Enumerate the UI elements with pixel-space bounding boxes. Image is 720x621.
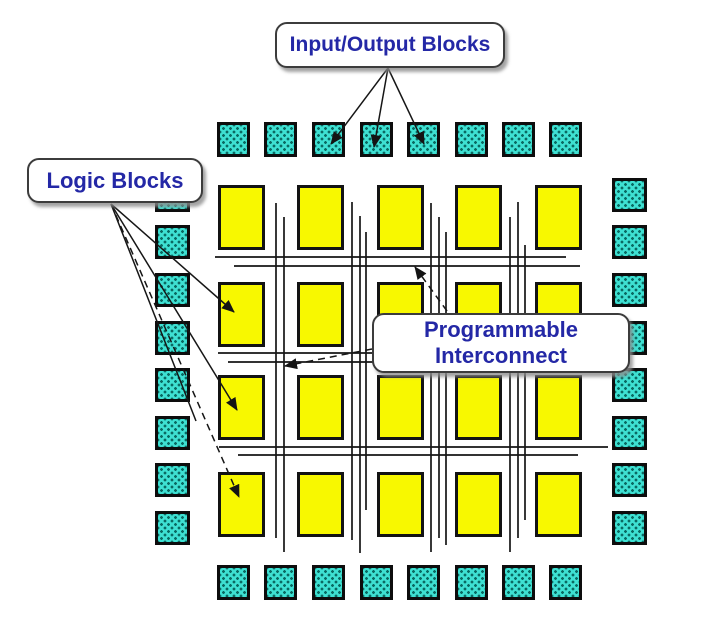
io-block-top <box>264 122 297 157</box>
logic-block <box>535 472 582 537</box>
io-block-top <box>502 122 535 157</box>
logic-block <box>218 282 265 347</box>
io-block-bottom <box>549 565 582 600</box>
io-block-left <box>155 463 190 497</box>
logic-block <box>377 472 424 537</box>
io-block-right <box>612 511 647 545</box>
io-block-right <box>612 463 647 497</box>
logic-block <box>377 375 424 440</box>
io-block-bottom <box>264 565 297 600</box>
io-block-top <box>407 122 440 157</box>
logic-block <box>297 472 344 537</box>
callout-input-output-blocks: Input/Output Blocks <box>275 22 505 68</box>
io-block-top <box>217 122 250 157</box>
io-block-right <box>612 225 647 259</box>
io-block-bottom <box>360 565 393 600</box>
logic-block <box>218 375 265 440</box>
logic-block <box>455 472 502 537</box>
io-block-bottom <box>455 565 488 600</box>
io-block-top <box>549 122 582 157</box>
io-block-left <box>155 416 190 450</box>
io-block-right <box>612 416 647 450</box>
io-block-right <box>612 273 647 307</box>
logic-block <box>535 375 582 440</box>
logic-block <box>297 185 344 250</box>
logic-block <box>218 185 265 250</box>
logic-block <box>297 375 344 440</box>
io-block-right <box>612 368 647 402</box>
fpga-architecture-diagram: Input/Output Blocks Logic Blocks Program… <box>0 0 720 621</box>
callout-programmable-interconnect-label-line2: Interconnect <box>435 343 567 369</box>
io-block-bottom <box>312 565 345 600</box>
callout-programmable-interconnect-arrow <box>285 349 372 366</box>
logic-block <box>218 472 265 537</box>
logic-block <box>297 282 344 347</box>
io-block-bottom <box>407 565 440 600</box>
callout-programmable-interconnect: Programmable Interconnect <box>372 313 630 373</box>
io-block-left <box>155 273 190 307</box>
callout-logic-blocks: Logic Blocks <box>27 158 203 203</box>
io-block-right <box>612 178 647 212</box>
io-block-top <box>360 122 393 157</box>
io-block-left <box>155 321 190 355</box>
logic-block <box>535 185 582 250</box>
logic-block <box>377 185 424 250</box>
io-block-left <box>155 368 190 402</box>
callout-programmable-interconnect-label-line1: Programmable <box>424 317 578 343</box>
callout-input-output-blocks-label: Input/Output Blocks <box>290 32 491 58</box>
logic-block <box>455 185 502 250</box>
io-block-left <box>155 511 190 545</box>
io-block-top <box>312 122 345 157</box>
io-block-bottom <box>217 565 250 600</box>
io-block-left <box>155 225 190 259</box>
callout-logic-blocks-label: Logic Blocks <box>47 168 184 194</box>
io-block-top <box>455 122 488 157</box>
io-block-bottom <box>502 565 535 600</box>
logic-block <box>455 375 502 440</box>
